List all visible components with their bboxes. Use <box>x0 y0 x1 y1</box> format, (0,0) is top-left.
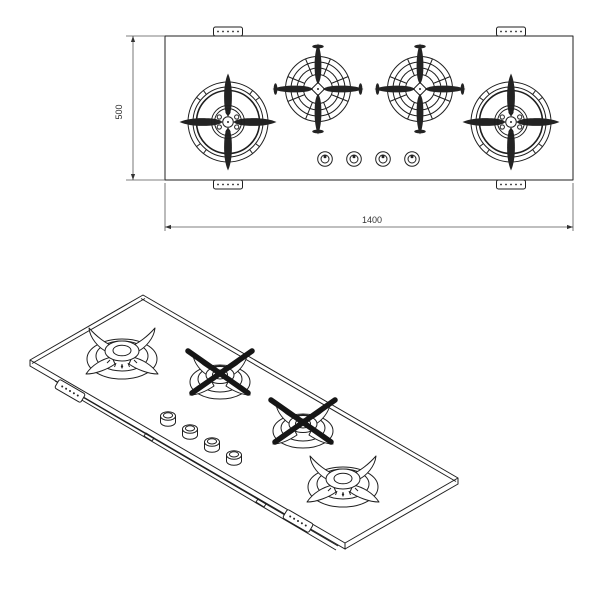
mounting-bracket-bottom-left <box>214 180 243 189</box>
iso-control-knob-3 <box>205 438 220 453</box>
hob-top-face <box>30 295 458 543</box>
iso-control-knob-4 <box>227 451 242 466</box>
dimension-width: 1400 <box>165 183 573 231</box>
iso-control-knob-2 <box>183 425 198 440</box>
iso-control-knob-1 <box>161 412 176 427</box>
hob-technical-drawing: 500 1400 <box>0 0 600 600</box>
mounting-bracket-top-left <box>214 27 243 36</box>
width-dimension-value: 1400 <box>362 215 382 225</box>
mounting-bracket-bottom-right <box>497 180 526 189</box>
iso-view <box>30 295 458 550</box>
plan-view: 500 1400 <box>114 27 573 231</box>
depth-dimension-value: 500 <box>114 104 124 119</box>
dimension-depth: 500 <box>114 36 165 180</box>
mounting-bracket-top-right <box>497 27 526 36</box>
drawing-canvas: 500 1400 <box>0 0 600 600</box>
